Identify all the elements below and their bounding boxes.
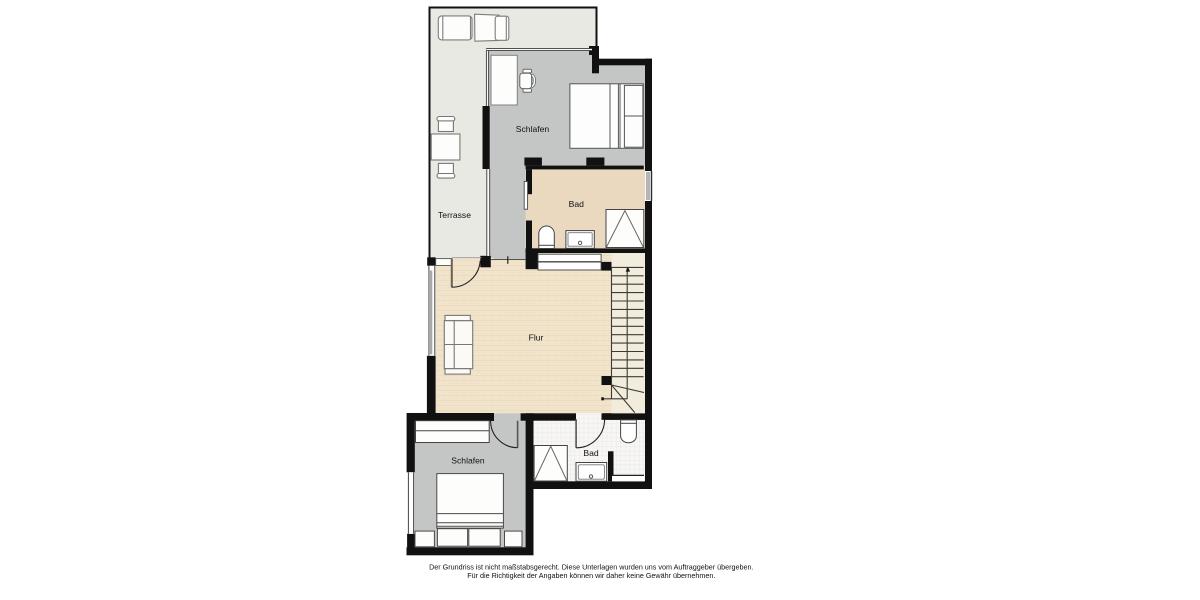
svg-text:Bad: Bad (583, 448, 599, 458)
svg-text:Schlafen: Schlafen (451, 455, 485, 465)
svg-text:Bad: Bad (569, 199, 585, 209)
svg-text:Flur: Flur (529, 332, 544, 342)
svg-text:Für die Richtigkeit der Angabe: Für die Richtigkeit der Angaben können w… (467, 571, 715, 580)
svg-text:Schlafen: Schlafen (516, 124, 550, 134)
svg-text:Terrasse: Terrasse (438, 210, 471, 220)
